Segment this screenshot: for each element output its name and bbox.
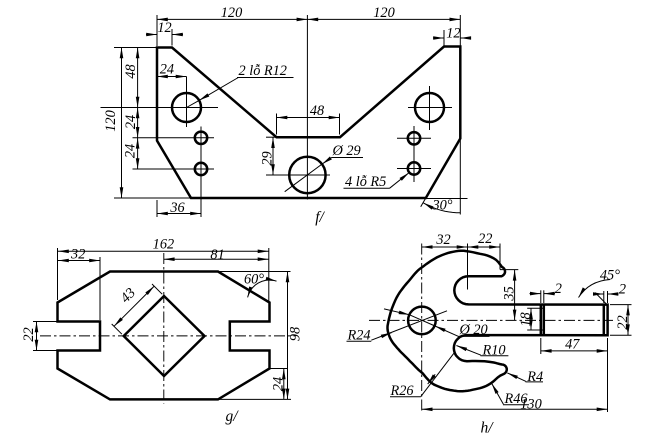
svg-text:Ø 29: Ø 29 — [332, 143, 361, 159]
svg-text:120: 120 — [373, 5, 394, 21]
svg-text:43: 43 — [117, 285, 138, 306]
svg-text:12: 12 — [157, 20, 171, 36]
svg-text:81: 81 — [210, 247, 224, 263]
svg-text:48: 48 — [310, 103, 324, 119]
svg-text:24: 24 — [123, 115, 139, 129]
svg-text:24: 24 — [123, 144, 139, 158]
svg-text:22: 22 — [21, 327, 37, 341]
svg-text:g/: g/ — [225, 408, 239, 425]
svg-text:120: 120 — [103, 110, 119, 131]
svg-text:48: 48 — [123, 64, 139, 78]
svg-text:36: 36 — [169, 200, 185, 216]
svg-text:32: 32 — [435, 232, 450, 248]
svg-text:12: 12 — [446, 25, 460, 41]
svg-text:18: 18 — [518, 312, 534, 326]
svg-text:29: 29 — [260, 151, 276, 165]
svg-text:2: 2 — [555, 281, 562, 297]
svg-text:Ø 20: Ø 20 — [459, 322, 488, 338]
svg-text:2: 2 — [619, 281, 626, 297]
svg-text:30°: 30° — [431, 198, 452, 214]
svg-text:32: 32 — [70, 246, 85, 262]
svg-text:98: 98 — [288, 327, 304, 341]
svg-text:120: 120 — [221, 5, 242, 21]
svg-text:60°: 60° — [244, 272, 264, 288]
svg-text:2 lỗ R12: 2 lỗ R12 — [239, 63, 287, 79]
svg-text:h/: h/ — [480, 420, 494, 437]
svg-text:f/: f/ — [315, 209, 325, 226]
svg-text:162: 162 — [153, 236, 174, 252]
svg-text:45°: 45° — [600, 267, 620, 283]
svg-text:24: 24 — [271, 377, 287, 391]
svg-text:35: 35 — [501, 286, 517, 301]
svg-text:R4: R4 — [526, 369, 543, 385]
svg-text:47: 47 — [565, 337, 580, 353]
svg-text:22: 22 — [478, 231, 492, 247]
svg-text:22: 22 — [615, 315, 631, 329]
svg-text:24: 24 — [160, 62, 174, 78]
svg-text:4 lỗ R5: 4 lỗ R5 — [345, 174, 386, 190]
